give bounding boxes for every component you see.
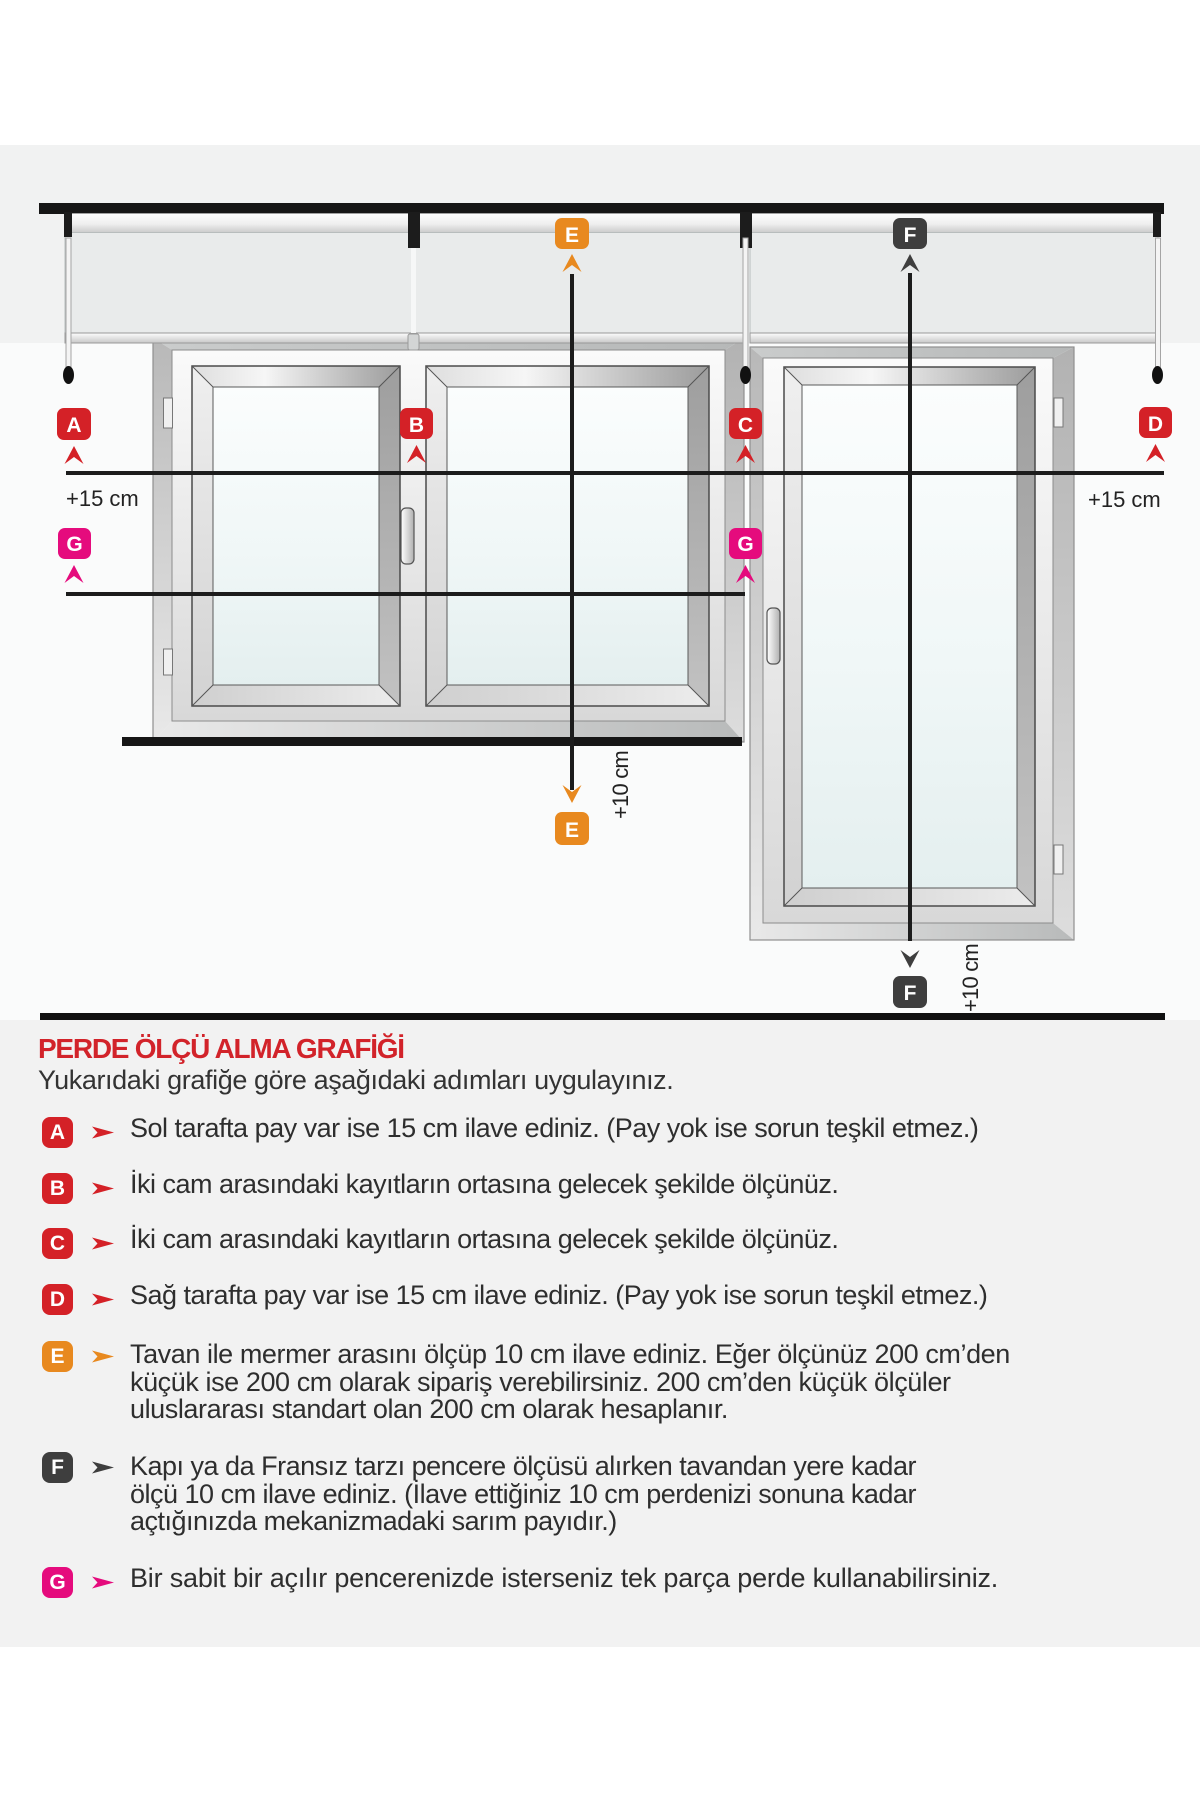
svg-text:F: F <box>904 224 917 247</box>
svg-text:F: F <box>904 982 917 1005</box>
svg-text:C: C <box>738 414 753 437</box>
svg-text:G: G <box>737 533 753 556</box>
svg-text:+15 cm: +15 cm <box>1088 487 1161 512</box>
svg-text:G: G <box>66 533 82 556</box>
svg-text:B: B <box>409 414 424 437</box>
svg-text:+10 cm: +10 cm <box>608 751 633 819</box>
svg-text:A: A <box>66 414 81 437</box>
svg-text:+15 cm: +15 cm <box>66 486 139 511</box>
svg-text:E: E <box>565 224 579 247</box>
svg-text:E: E <box>565 819 579 842</box>
svg-text:D: D <box>1148 413 1163 436</box>
svg-text:+10 cm: +10 cm <box>958 944 983 1012</box>
